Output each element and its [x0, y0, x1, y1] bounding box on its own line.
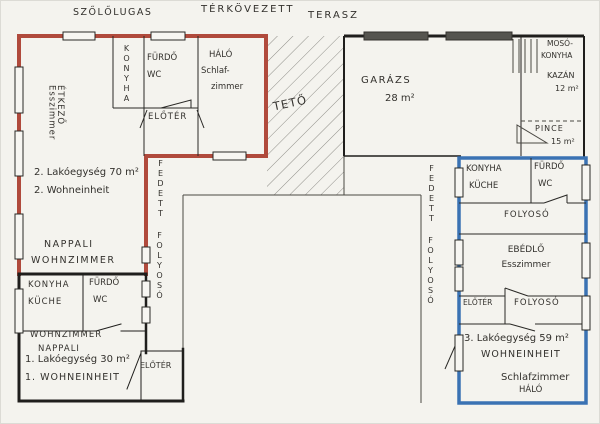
label-unit1-hall: ELŐTÉR: [140, 362, 171, 370]
window-blue-left-2: [455, 240, 463, 265]
label-covered-corridor-right-1: FEDETT: [427, 164, 435, 224]
label-unit1-kitchen-line2: KÜCHE: [28, 294, 70, 311]
door-swing-bath3: [544, 195, 567, 203]
window-blue-right-1: [582, 165, 590, 200]
label-unit3-bath-line2: WC: [534, 176, 564, 193]
label-unit2-bedroom-line1: HÁLÓ: [201, 47, 243, 63]
label-unit1-kitchen-line1: KONYHA: [28, 277, 70, 294]
label-laundry-line2: KONYHA: [541, 50, 573, 62]
label-covered-corridor-right-2: FOLYOSÓ: [426, 236, 434, 306]
label-unit3-kitchen: KONYHA KÜCHE: [466, 161, 502, 195]
window-top-1: [63, 32, 95, 40]
window-blue-right-3: [582, 296, 590, 330]
label-unit1-living: WOHNZIMMER NAPPALI: [30, 328, 102, 356]
label-unit3-corridor-b: FOLYOSÓ: [514, 299, 560, 308]
window-left-3: [15, 214, 23, 259]
label-paving: TÉRKÖVEZETT: [201, 5, 294, 15]
label-unit3-bedroom-line1: Schlafzimmer: [501, 371, 569, 384]
label-garage-area: 28 m²: [385, 94, 415, 104]
label-cellar-area: 15 m²: [551, 138, 575, 146]
label-unit2-title-2: 2. Wohneinheit: [34, 186, 109, 196]
label-boiler-name: KAZÁN: [547, 69, 579, 82]
label-unit2-living-line2: WOHNZIMMER: [31, 253, 115, 269]
door-swing-bath2: [161, 100, 191, 108]
label-laundry-line1: MOSÓ-: [541, 38, 573, 50]
laundry-stair-mark: [513, 39, 537, 73]
label-unit3-corridor-a: FOLYOSÓ: [504, 211, 550, 220]
label-boiler-area: 12 m²: [547, 82, 579, 95]
door-openings: [142, 247, 150, 323]
label-cellar: PINCE: [535, 125, 564, 133]
window-blue-left-1: [455, 168, 463, 197]
label-covered-corridor-left-2: FOLYOSÓ: [155, 231, 163, 301]
label-laundry: MOSÓ- KONYHA: [541, 38, 573, 62]
label-unit3-dining-line1: EBÉDLŐ: [491, 243, 561, 258]
window-left-1: [15, 67, 23, 113]
label-unit3-kitchen-line1: KONYHA: [466, 161, 502, 178]
label-garage: GARÁZS: [361, 76, 411, 86]
label-unit3-hall: ELŐTÉR: [463, 299, 492, 307]
label-terrace: TERASZ: [308, 11, 359, 21]
label-unit2-title-1: 2. Lakóegység 70 m²: [34, 168, 139, 178]
label-unit2-bedroom-line3: zimmer: [201, 79, 243, 95]
window-left-2: [15, 131, 23, 176]
label-unit3-bath-line1: FÜRDŐ: [534, 159, 564, 176]
label-unit2-bedroom: HÁLÓ Schlaf- zimmer: [201, 47, 243, 95]
label-unit2-living: NAPPALI WOHNZIMMER: [31, 237, 115, 269]
roof-hatch-area: [267, 36, 344, 195]
label-unit3-dining-line2: Esszimmer: [491, 258, 561, 273]
door-blue-entrance: [455, 335, 463, 371]
label-unit3-title-2: WOHNEINHEIT: [481, 350, 561, 360]
label-unit2-bath-line2: WC: [147, 67, 177, 84]
label-unit3-bedroom-line2: HÁLÓ: [501, 384, 569, 397]
label-unit2-kitchen: KONYHA: [122, 44, 130, 104]
label-unit1-bath-line2: WC: [89, 292, 119, 309]
label-unit2-living-line1: NAPPALI: [31, 237, 115, 253]
label-unit2-hall: ELŐTÉR: [148, 113, 187, 122]
label-unit2-bath-line1: FÜRDŐ: [147, 50, 177, 67]
window-south-red: [213, 152, 246, 160]
label-pergola: SZŐLŐLUGAS: [73, 8, 152, 18]
door-swing-corridor3b: [510, 324, 535, 331]
label-boiler: KAZÁN 12 m²: [547, 69, 579, 95]
label-unit1-title-1: 1. Lakóegység 30 m²: [25, 355, 130, 365]
label-unit2-bath: FÜRDŐ WC: [147, 50, 177, 84]
label-unit1-title-2: 1. WOHNEINHEIT: [25, 373, 120, 383]
label-unit2-bedroom-line2: Schlaf-: [201, 63, 243, 79]
window-top-2: [151, 32, 185, 40]
label-unit3-kitchen-line2: KÜCHE: [466, 178, 502, 195]
label-unit1-kitchen: KONYHA KÜCHE: [28, 277, 70, 311]
label-unit3-dining: EBÉDLŐ Esszimmer: [491, 243, 561, 273]
label-unit1-bath: FÜRDŐ WC: [89, 275, 119, 309]
window-blue-right-2: [582, 243, 590, 278]
label-unit3-bath: FÜRDŐ WC: [534, 159, 564, 193]
label-unit1-bath-line1: FÜRDŐ: [89, 275, 119, 292]
window-left-4: [15, 289, 23, 333]
label-covered-corridor-left-1: FEDETT: [156, 159, 164, 219]
label-unit1-living-line1: WOHNZIMMER: [30, 328, 102, 342]
floor-plan-page: SZŐLŐLUGAS TÉRKÖVEZETT TERASZ TETŐ FEDET…: [0, 0, 600, 424]
label-unit3-bedroom: Schlafzimmer HÁLÓ: [501, 371, 569, 397]
label-unit3-title-1: 3. Lakóegység 59 m²: [464, 334, 569, 344]
door-swing-corridor3a: [505, 288, 528, 296]
window-blue-left-3: [455, 267, 463, 291]
